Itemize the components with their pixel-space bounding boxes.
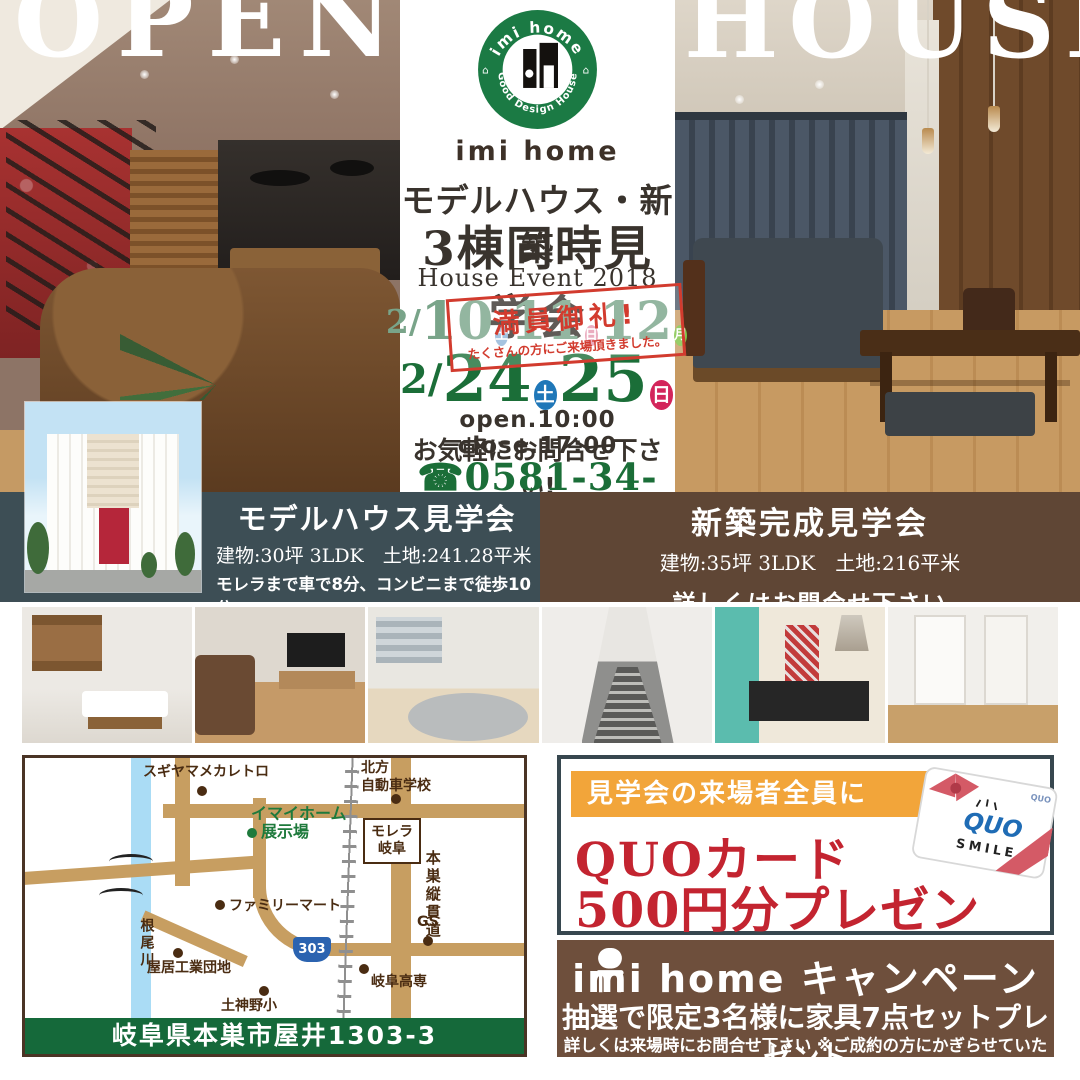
decor	[749, 681, 869, 721]
decor	[735, 95, 744, 104]
decor	[984, 615, 1028, 705]
campaign-line2: 詳しくは来場時にお問合せ下さい ※ご成約の方にかぎらせていただきます	[557, 1032, 1054, 1080]
campaign-box: imi home キャンペーン 抽選で限定3名様に家具7点セットプレゼント 詳し…	[557, 940, 1054, 1057]
decor	[230, 55, 239, 64]
map-label-gs: GS	[417, 914, 439, 932]
decor	[82, 691, 168, 717]
strip-photo-entry	[888, 607, 1058, 743]
map-bridge-mark	[99, 888, 143, 903]
date-prefix: 2/	[386, 305, 421, 338]
decor	[279, 671, 355, 689]
decor	[195, 655, 255, 735]
interior-photo-strip	[22, 607, 1058, 743]
hero-photo-right	[675, 0, 1080, 495]
logo-graphic: imi home Good Design House ⌂ ⌂	[476, 8, 599, 131]
decor-shrub	[141, 552, 157, 578]
model-house-title: モデルハウス見学会	[216, 496, 538, 538]
decor	[330, 90, 339, 99]
access-map: スギヤマメカレトロ 北方 自動車学校 イマイホーム 展示場 モレラ 岐阜 本巣縦…	[22, 755, 527, 1057]
imi-home-logo: imi home Good Design House ⌂ ⌂	[476, 8, 599, 131]
brand-name: imi home	[400, 136, 675, 167]
quo-card-image: QUO QUO SMILE	[909, 756, 1062, 886]
map-canvas: スギヤマメカレトロ 北方 自動車学校 イマイホーム 展示場 モレラ 岐阜 本巣縦…	[25, 758, 524, 1018]
quo-card-graphic: QUO QUO SMILE	[909, 756, 1062, 886]
map-label-dojinno: 土神野小	[221, 998, 277, 1016]
decor	[25, 570, 201, 592]
map-label-kosen: 岐阜高専	[371, 974, 427, 992]
house-icon: ⌂	[482, 65, 489, 77]
strip-photo-washroom	[22, 607, 192, 743]
model-house-specs: 建物:30坪 3LDK 土地:241.28平米	[216, 541, 538, 568]
map-bridge-mark	[109, 854, 153, 869]
decor	[376, 617, 442, 663]
decor-bench	[885, 392, 1035, 436]
decor-pendant-lamp	[330, 160, 374, 176]
strip-photo-kids-room	[368, 607, 538, 743]
decor	[87, 434, 139, 508]
decor-plant	[120, 250, 280, 400]
map-poi-dot-green	[247, 828, 257, 838]
address-bar: 岐阜県本巣市屋井1303-3	[25, 1018, 524, 1054]
map-label-sugiyama: スギヤマメカレトロ	[143, 764, 269, 782]
decor	[815, 80, 824, 89]
map-poi-dot	[359, 964, 369, 974]
map-label-morera-box: モレラ 岐阜	[363, 818, 421, 864]
decor	[0, 0, 170, 130]
house-icon: ⌂	[583, 65, 590, 77]
decor-pendant-cord	[993, 0, 995, 108]
map-label-imai-site: 展示場	[261, 822, 309, 842]
house-exterior-photo	[25, 402, 201, 592]
campaign-title: imi home キャンペーン	[557, 948, 1054, 1003]
decor	[408, 693, 528, 741]
strip-photo-kitchen	[715, 607, 885, 743]
map-label-yai: 屋居工業団地	[147, 960, 231, 978]
decor-red-door	[99, 508, 129, 564]
weekday-badge-sun: 日	[650, 380, 673, 410]
decor-pendant-lamp	[250, 170, 310, 186]
decor	[1045, 352, 1057, 422]
map-label-imai-home: イマイホーム	[251, 804, 347, 824]
decor-pendant-bulb	[988, 106, 1000, 132]
map-river	[131, 758, 151, 1018]
route-303-shield: 303	[293, 937, 331, 962]
strip-photo-hallway	[542, 607, 712, 743]
map-poi-dot	[197, 786, 207, 796]
quo-band-text: 見学会の来場者全員に	[571, 771, 933, 817]
weekday-badge-sat: 土	[534, 380, 557, 410]
new-build-title: 新築完成見学会	[540, 498, 1080, 543]
map-label-kitagata: 北方 自動車学校	[361, 760, 431, 795]
decor	[785, 625, 819, 681]
decor-pendant-cord	[927, 0, 929, 130]
new-build-band: 新築完成見学会 建物:35坪 3LDK 土地:216平米 詳しくはお問合せ下さい	[540, 492, 1080, 602]
decor-sofa	[693, 238, 883, 368]
decor-pendant-bulb	[922, 128, 934, 154]
map-poi-dot	[423, 936, 433, 946]
map-poi-dot	[391, 794, 401, 804]
decor	[287, 633, 345, 667]
decor	[905, 20, 939, 320]
strip-photo-living	[195, 607, 365, 743]
flyer-page: OPEN HOUSE imi home Good Design House	[0, 0, 1080, 1080]
decor	[835, 615, 869, 651]
map-poi-dot	[173, 948, 183, 958]
date-prefix: 2/	[400, 360, 442, 400]
map-road	[141, 911, 248, 968]
quo-gift-box: 見学会の来場者全員に QUOカード 500円分プレゼント! QUO QUO SM…	[557, 755, 1054, 935]
decor-shrub	[27, 522, 49, 574]
center-column: imi home Good Design House ⌂ ⌂ imi home …	[400, 0, 675, 495]
map-poi-dot	[215, 900, 225, 910]
decor-shrub	[175, 532, 195, 576]
map-poi-dot	[259, 986, 269, 996]
decor	[140, 70, 149, 79]
decor	[914, 615, 966, 705]
decor-chair	[963, 288, 1015, 334]
new-build-specs: 建物:35坪 3LDK 土地:216平米	[540, 547, 1080, 576]
decor	[32, 615, 102, 671]
map-label-famima: ファミリーマート	[229, 898, 341, 916]
